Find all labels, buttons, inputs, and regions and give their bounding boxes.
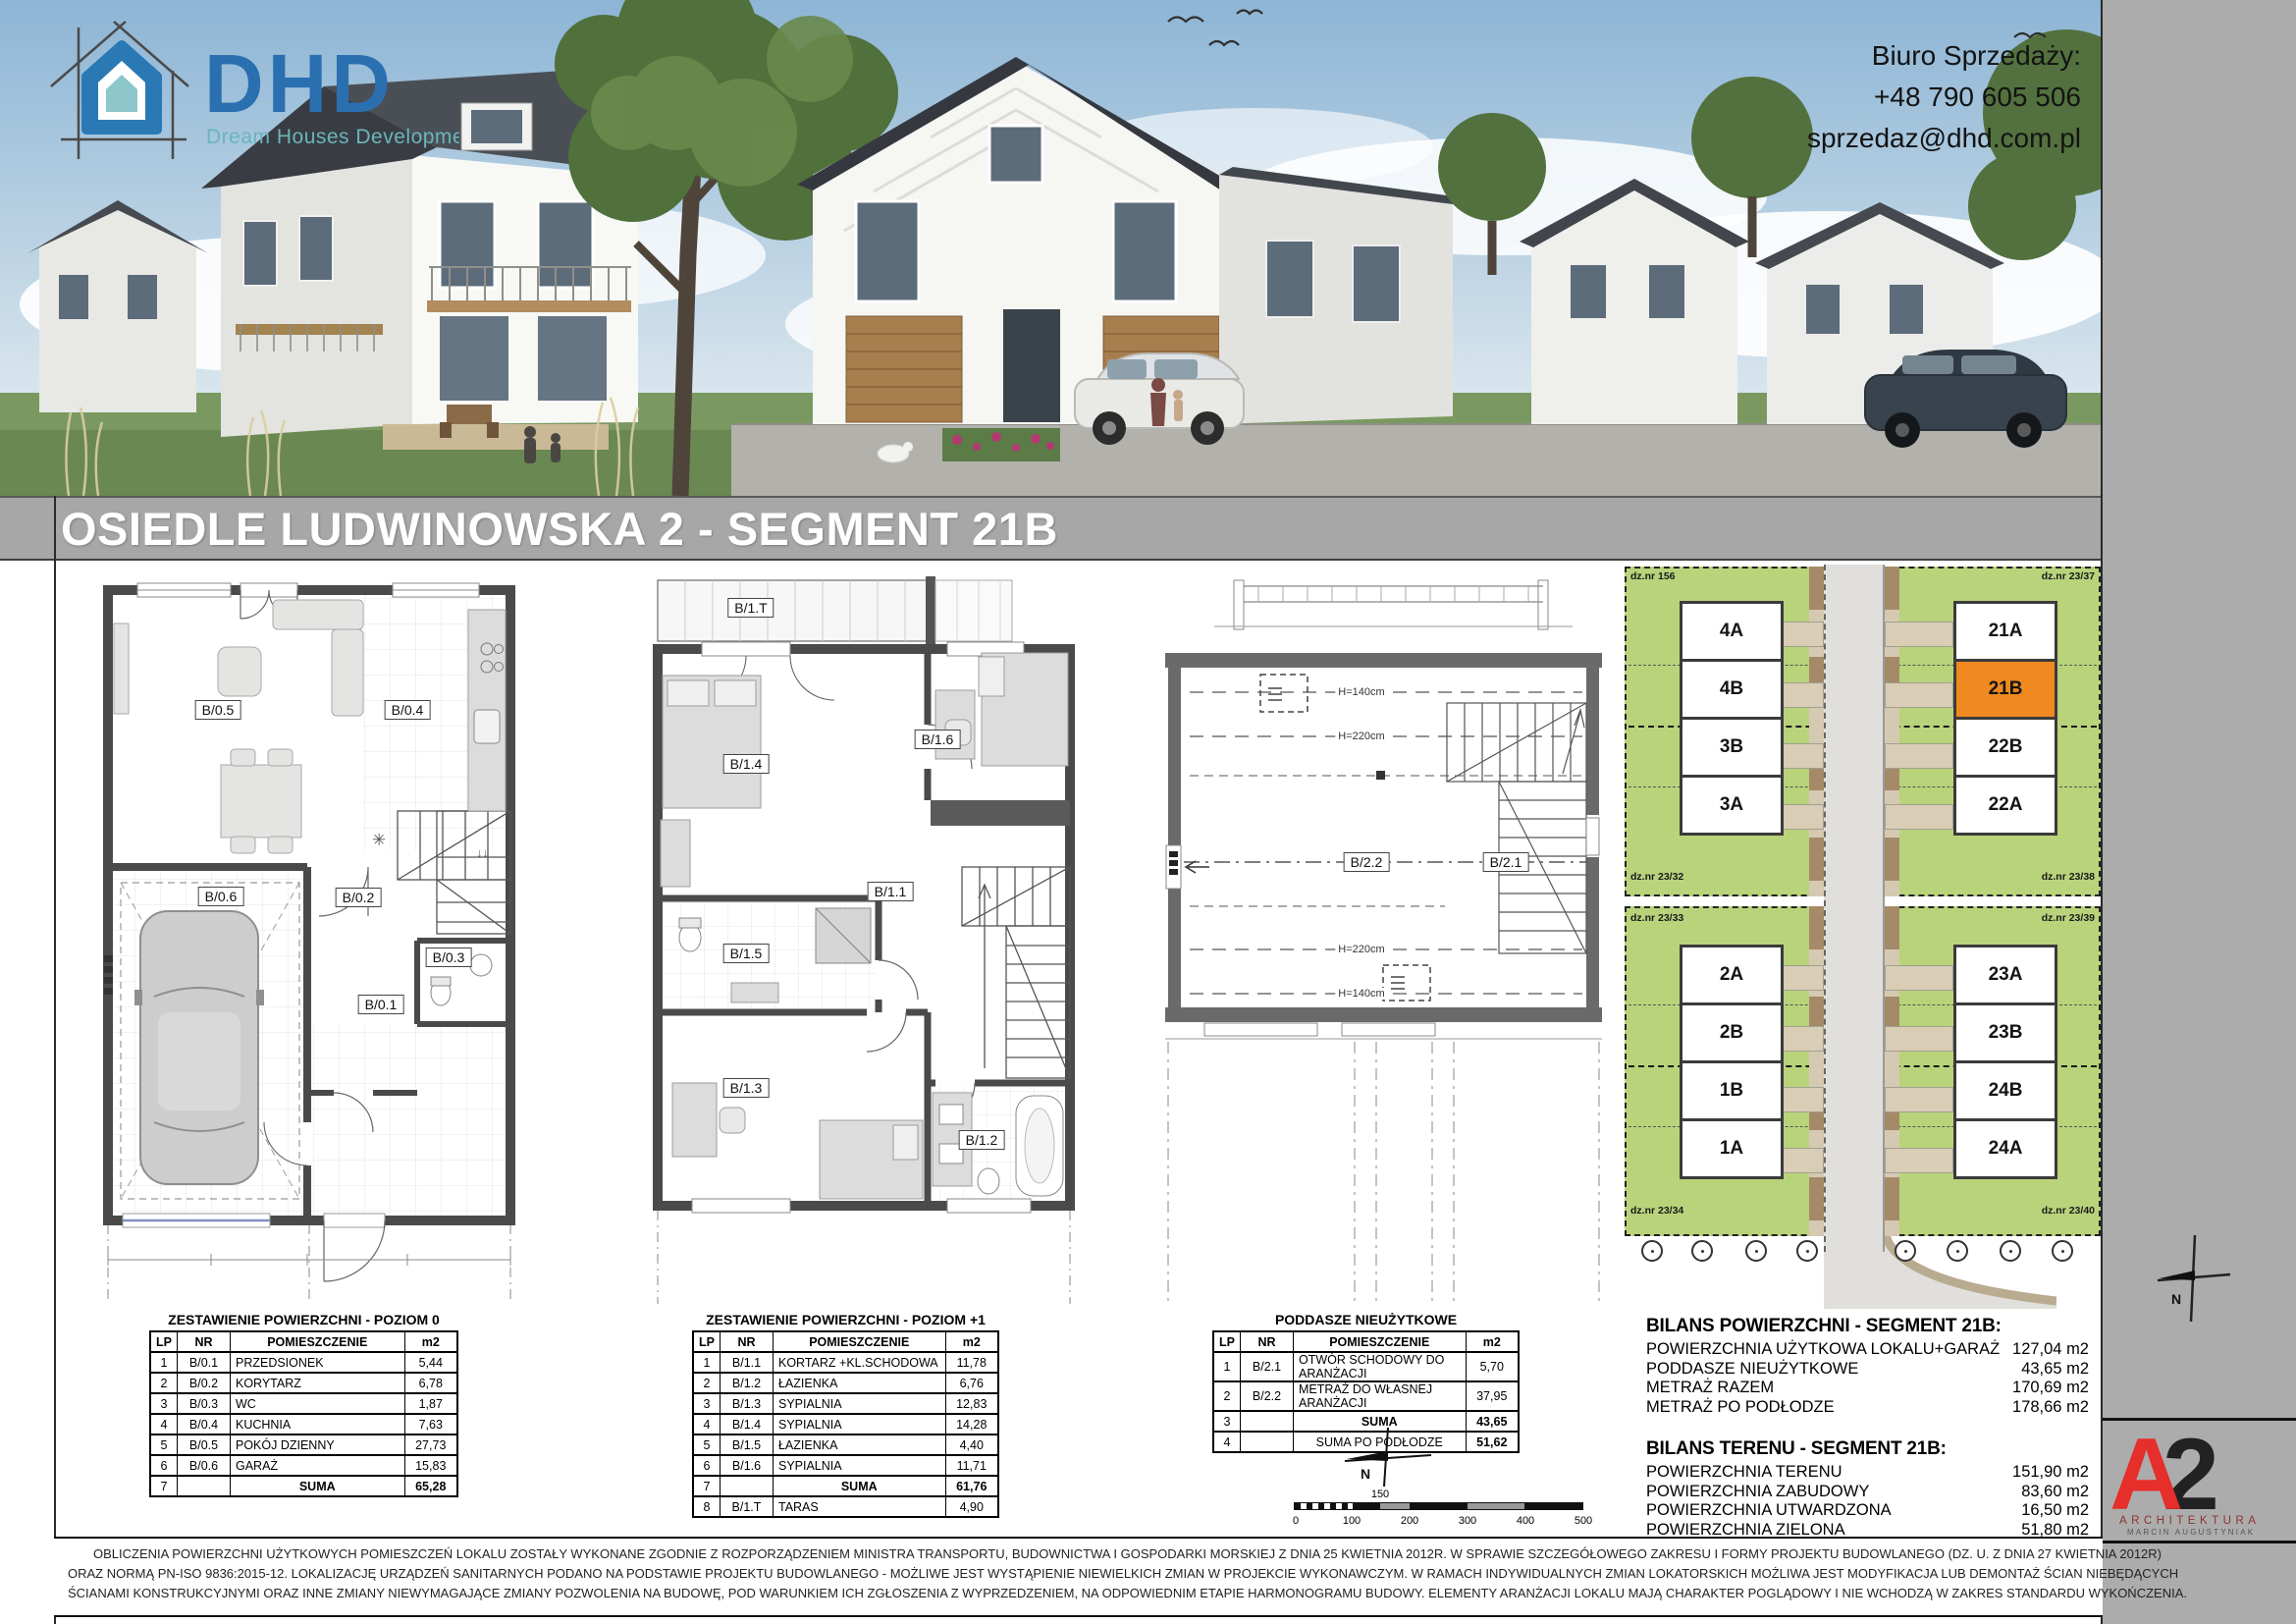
architect-name: MARCIN AUGUSTYNIAK — [2127, 1528, 2255, 1537]
col-header: NR — [720, 1331, 773, 1352]
room-label: B/1.2 — [959, 1130, 1005, 1150]
bilans-value: 43,65 m2 — [2021, 1360, 2089, 1380]
access-road — [1824, 565, 1885, 1252]
cell-room: ŁAZIENKA — [773, 1435, 945, 1455]
area-row: 1 B/2.1 OTWÓR SCHODOWY DO ARANŻACJI 5,70 — [1213, 1352, 1519, 1381]
north-arrow-icon: N — [2150, 1229, 2238, 1327]
cell-lp: 3 — [150, 1393, 177, 1414]
cell-room: SUMA — [773, 1476, 945, 1496]
unit-label: 21A — [1989, 621, 2023, 642]
right-margin-rail: N 2 A ARCHITEKTURA MARCIN AUGUSTYNIAK — [2101, 0, 2296, 1624]
table-header-row: LP NR POMIESZCZENIE m2 — [693, 1331, 998, 1352]
cell-nr: B/1.1 — [720, 1352, 773, 1373]
contact-phone: +48 790 605 506 — [1659, 77, 2081, 118]
disclaimer-line: ŚCIANAMI KONSTRUKCYJNYMI ORAZ INNE ZMIAN… — [68, 1584, 2095, 1603]
entry-path — [1885, 804, 1953, 830]
table-header-row: LP NR POMIESZCZENIE m2 — [1213, 1331, 1519, 1352]
area-row: 5 B/1.5 ŁAZIENKA 4,40 — [693, 1435, 998, 1455]
room-label: B/0.4 — [385, 700, 431, 720]
title-banner: OSIEDLE LUDWINOWSKA 2 - SEGMENT 21B — [0, 496, 2101, 561]
cell-nr: B/1.6 — [720, 1455, 773, 1476]
area-table-level0: LP NR POMIESZCZENIE m2 1 B/0.1 PRZEDSION… — [149, 1330, 458, 1497]
plot-number: dz.nr 23/38 — [2042, 871, 2095, 883]
cell-area: 1,87 — [404, 1393, 457, 1414]
tree-icon — [1691, 1240, 1713, 1262]
col-header: m2 — [945, 1331, 998, 1352]
cell-area: 7,63 — [404, 1414, 457, 1435]
cell-area: 4,90 — [945, 1496, 998, 1517]
site-unit: 22A — [1953, 775, 2057, 836]
cell-lp: 2 — [693, 1373, 720, 1393]
cell-area: 12,83 — [945, 1393, 998, 1414]
sales-contact: Biuro Sprzedaży: +48 790 605 506 sprzeda… — [1659, 35, 2081, 159]
cell-lp: 1 — [150, 1352, 177, 1373]
entry-path — [1780, 622, 1824, 647]
area-row: 4 B/0.4 KUCHNIA 7,63 — [150, 1414, 457, 1435]
plot-number: dz.nr 23/37 — [2042, 570, 2095, 582]
brand-name: DHD — [204, 37, 395, 130]
entry-path — [1885, 622, 1953, 647]
room-label: B/0.5 — [195, 700, 241, 720]
area-table-level0-box: ZESTAWIENIE POWIERZCHNI - POZIOM 0 LP NR… — [149, 1312, 458, 1497]
bilans-areas-title: BILANS POWIERZCHNI - SEGMENT 21B: — [1646, 1316, 2089, 1337]
cell-room: SYPIALNIA — [773, 1414, 945, 1435]
height-annotation: H=140cm — [1335, 686, 1387, 698]
architect-logo-box: 2 A ARCHITEKTURA MARCIN AUGUSTYNIAK — [2103, 1418, 2296, 1543]
area-row: 2 B/2.2 METRAŻ DO WŁASNEJ ARANŻACJI 37,9… — [1213, 1381, 1519, 1411]
cell-area: 14,28 — [945, 1414, 998, 1435]
table-title: ZESTAWIENIE POWIERZCHNI - POZIOM 0 — [149, 1312, 458, 1327]
area-row: 7 SUMA 61,76 — [693, 1476, 998, 1496]
cell-nr: B/2.2 — [1240, 1381, 1293, 1411]
site-unit: 1B — [1680, 1060, 1784, 1121]
site-unit: 3B — [1680, 717, 1784, 778]
bilans-row: POWIERZCHNIA TERENU 151,90 m2 — [1646, 1463, 2089, 1483]
area-table-level1: LP NR POMIESZCZENIE m2 1 B/1.1 KORTARZ +… — [692, 1330, 999, 1518]
site-unit: 24A — [1953, 1118, 2057, 1179]
bilans-row: METRAŻ RAZEM 170,69 m2 — [1646, 1379, 2089, 1398]
unit-label: 1A — [1720, 1138, 1743, 1160]
svg-text:↓↓: ↓↓ — [476, 845, 489, 860]
contact-title: Biuro Sprzedaży: — [1659, 35, 2081, 77]
unit-label: 24B — [1989, 1080, 2023, 1102]
tree-icon — [1895, 1240, 1916, 1262]
brand-tagline: Dream Houses Development — [206, 126, 459, 148]
cell-room: POKÓJ DZIENNY — [230, 1435, 404, 1455]
area-row: 3 B/1.3 SYPIALNIA 12,83 — [693, 1393, 998, 1414]
unit-label: 2A — [1720, 964, 1743, 986]
bilans-site-title: BILANS TERENU - SEGMENT 21B: — [1646, 1438, 2089, 1460]
area-row: 1 B/1.1 KORTARZ +KL.SCHODOWA 11,78 — [693, 1352, 998, 1373]
room-label: B/0.1 — [358, 995, 404, 1014]
table-title: PODDASZE NIEUŻYTKOWE — [1212, 1312, 1520, 1327]
cell-area: 61,76 — [945, 1476, 998, 1496]
site-unit: 3A — [1680, 775, 1784, 836]
dhd-logo: DHD Dream Houses Development — [27, 14, 459, 161]
cell-area: 11,71 — [945, 1455, 998, 1476]
cell-nr: B/1.T — [720, 1496, 773, 1517]
site-unit: 24B — [1953, 1060, 2057, 1121]
col-header: POMIESZCZENIE — [1293, 1331, 1466, 1352]
col-header: LP — [1213, 1331, 1240, 1352]
site-unit: 2B — [1680, 1002, 1784, 1063]
unit-label: 23B — [1989, 1022, 2023, 1044]
unit-label: 22B — [1989, 736, 2023, 758]
cell-room: METRAŻ DO WŁASNEJ ARANŻACJI — [1293, 1381, 1466, 1411]
unit-label: 3B — [1720, 736, 1743, 758]
scale-label: 300 — [1459, 1515, 1476, 1527]
col-header: NR — [1240, 1331, 1293, 1352]
room-label: B/1.1 — [868, 882, 914, 901]
area-row: 6 B/0.6 GARAŻ 15,83 — [150, 1455, 457, 1476]
cell-room: TARAS — [773, 1496, 945, 1517]
site-plan: 4A4B3B3A 21A21B22B22A 2A2B1B1A 23A23B24B… — [1625, 565, 2101, 1309]
entry-path — [1780, 682, 1824, 708]
page-title: OSIEDLE LUDWINOWSKA 2 - SEGMENT 21B — [0, 502, 1058, 556]
cell-room: KUCHNIA — [230, 1414, 404, 1435]
cell-lp: 4 — [693, 1414, 720, 1435]
col-header: NR — [177, 1331, 230, 1352]
bilans-row: METRAŻ PO PODŁODZE 178,66 m2 — [1646, 1398, 2089, 1418]
cell-lp: 5 — [693, 1435, 720, 1455]
col-header: LP — [693, 1331, 720, 1352]
bilans-value: 83,60 m2 — [2021, 1483, 2089, 1502]
unit-column-lower-right: 23A23B24B24A — [1953, 947, 2057, 1179]
bilans-row: POWIERZCHNIA UŻYTKOWA LOKALU+GARAŻ 127,0… — [1646, 1340, 2089, 1360]
site-unit: 21B — [1953, 659, 2057, 720]
entry-path — [1885, 682, 1953, 708]
area-row: 5 B/0.5 POKÓJ DZIENNY 27,73 — [150, 1435, 457, 1455]
cell-nr: B/1.4 — [720, 1414, 773, 1435]
cell-nr: B/1.2 — [720, 1373, 773, 1393]
bilans-row: POWIERZCHNIA ZABUDOWY 83,60 m2 — [1646, 1483, 2089, 1502]
height-annotation: H=140cm — [1335, 988, 1387, 1000]
disclaimer-line: ORAZ NORMĄ PN-ISO 9836:2015-12. LOKALIZA… — [68, 1564, 2095, 1584]
scale-label: 0 — [1293, 1515, 1299, 1527]
tree-icon — [2000, 1240, 2021, 1262]
cell-room: WC — [230, 1393, 404, 1414]
cell-lp: 6 — [150, 1455, 177, 1476]
bilans-row: PODDASZE NIEUŻYTKOWE 43,65 m2 — [1646, 1360, 2089, 1380]
plot-number: dz.nr 156 — [1630, 570, 1676, 582]
room-label: B/1.3 — [723, 1078, 770, 1098]
hero-render-photo: DHD Dream Houses Development Biuro Sprze… — [0, 0, 2101, 496]
floor-plan-level1: B/1.T B/1.4 B/1.6 B/1.5 B/1.1 B/1.3 B/1.… — [633, 572, 1095, 1307]
area-row: 4 B/1.4 SYPIALNIA 14,28 — [693, 1414, 998, 1435]
col-header: POMIESZCZENIE — [230, 1331, 404, 1352]
cell-area: 6,78 — [404, 1373, 457, 1393]
unit-label: 3A — [1720, 794, 1743, 816]
cell-nr: B/1.5 — [720, 1435, 773, 1455]
area-table-level1-box: ZESTAWIENIE POWIERZCHNI - POZIOM +1 LP N… — [692, 1312, 999, 1518]
room-label: B/2.1 — [1483, 852, 1529, 872]
bilans-areas-rows: POWIERZCHNIA UŻYTKOWA LOKALU+GARAŻ 127,0… — [1646, 1340, 2089, 1417]
bilans-value: 127,04 m2 — [2012, 1340, 2089, 1360]
site-unit: 2A — [1680, 945, 1784, 1005]
cell-nr: B/0.3 — [177, 1393, 230, 1414]
contact-email: sprzedaz@dhd.com.pl — [1659, 118, 2081, 159]
entry-path — [1780, 804, 1824, 830]
cell-room: SYPIALNIA — [773, 1455, 945, 1476]
cell-lp: 6 — [693, 1455, 720, 1476]
cell-nr: B/0.2 — [177, 1373, 230, 1393]
entry-path — [1780, 1087, 1824, 1112]
height-annotation: H=220cm — [1335, 731, 1387, 742]
cell-nr: B/0.5 — [177, 1435, 230, 1455]
unit-column-upper-left: 4A4B3B3A — [1680, 604, 1784, 836]
area-row: 3 B/0.3 WC 1,87 — [150, 1393, 457, 1414]
cell-area: 6,76 — [945, 1373, 998, 1393]
cell-lp: 7 — [150, 1476, 177, 1496]
room-label: B/1.6 — [915, 730, 961, 749]
cell-room: OTWÓR SCHODOWY DO ARANŻACJI — [1293, 1352, 1466, 1381]
bilans-value: 178,66 m2 — [2012, 1398, 2089, 1418]
entry-path — [1780, 1148, 1824, 1173]
cell-lp: 7 — [693, 1476, 720, 1496]
sidewalk — [1809, 906, 1824, 1236]
cell-area: 4,40 — [945, 1435, 998, 1455]
north-arrow-icon: N — [1337, 1426, 1435, 1489]
area-row: 1 B/0.1 PRZEDSIONEK 5,44 — [150, 1352, 457, 1373]
area-summary: BILANS POWIERZCHNI - SEGMENT 21B: POWIER… — [1646, 1316, 2089, 1540]
plot-number: dz.nr 23/33 — [1630, 912, 1683, 924]
unit-column-upper-right: 21A21B22B22A — [1953, 604, 2057, 836]
col-header: m2 — [404, 1331, 457, 1352]
floor-plan-attic: B/2.2 B/2.1 H=140cm H=220cm H=220cm H=14… — [1150, 572, 1620, 1307]
bilans-label: PODDASZE NIEUŻYTKOWE — [1646, 1360, 1858, 1380]
cell-lp: 2 — [150, 1373, 177, 1393]
cell-nr — [177, 1476, 230, 1496]
unit-label: 22A — [1989, 794, 2023, 816]
room-label: B/0.2 — [336, 888, 382, 907]
cell-lp: 4 — [150, 1414, 177, 1435]
scale-mid-label: 150 — [1371, 1489, 1389, 1500]
table-title: ZESTAWIENIE POWIERZCHNI - POZIOM +1 — [692, 1312, 999, 1327]
cell-lp: 1 — [1213, 1352, 1240, 1381]
floor-plan-level0: ✳ ↓↓ B/0.5 B/0. — [83, 572, 530, 1307]
scale-label: 100 — [1343, 1515, 1361, 1527]
tree-icon — [1796, 1240, 1818, 1262]
site-unit: 22B — [1953, 717, 2057, 778]
site-unit: 21A — [1953, 601, 2057, 662]
cell-lp: 3 — [693, 1393, 720, 1414]
bilans-label: POWIERZCHNIA TERENU — [1646, 1463, 1842, 1483]
cell-area: 15,83 — [404, 1455, 457, 1476]
room-label: B/2.2 — [1344, 852, 1390, 872]
architect-word: ARCHITEKTURA — [2119, 1515, 2260, 1527]
cell-area: 5,44 — [404, 1352, 457, 1373]
bilans-label: POWIERZCHNIA UTWARDZONA — [1646, 1501, 1892, 1521]
cell-area: 43,65 — [1466, 1411, 1519, 1432]
unit-label: 1B — [1720, 1080, 1743, 1102]
entry-path — [1885, 1087, 1953, 1112]
cell-nr: B/1.3 — [720, 1393, 773, 1414]
area-row: 7 SUMA 65,28 — [150, 1476, 457, 1496]
cell-lp: 1 — [693, 1352, 720, 1373]
room-label: B/1.4 — [723, 754, 770, 774]
cell-lp: 8 — [693, 1496, 720, 1517]
height-annotation: H=220cm — [1335, 944, 1387, 955]
entry-path — [1885, 743, 1953, 769]
area-row: 6 B/1.6 SYPIALNIA 11,71 — [693, 1455, 998, 1476]
area-row: 8 B/1.T TARAS 4,90 — [693, 1496, 998, 1517]
bilans-label: POWIERZCHNIA UŻYTKOWA LOKALU+GARAŻ — [1646, 1340, 2000, 1360]
unit-label: 4A — [1720, 621, 1743, 642]
cell-area: 51,62 — [1466, 1432, 1519, 1452]
bilans-label: METRAŻ PO PODŁODZE — [1646, 1398, 1835, 1418]
sidewalk — [1809, 567, 1824, 896]
legal-disclaimer: OBLICZENIA POWIERZCHNI UŻYTKOWYCH POMIES… — [54, 1537, 2103, 1617]
cell-room: ŁAZIENKA — [773, 1373, 945, 1393]
unit-label: 4B — [1720, 678, 1743, 700]
entry-path — [1885, 1148, 1953, 1173]
cell-room: KORTARZ +KL.SCHODOWA — [773, 1352, 945, 1373]
a2-architect-logo: 2 A ARCHITEKTURA MARCIN AUGUSTYNIAK — [2111, 1423, 2288, 1539]
bilans-value: 170,69 m2 — [2012, 1379, 2089, 1398]
bilans-site-rows: POWIERZCHNIA TERENU 151,90 m2 POWIERZCHN… — [1646, 1463, 2089, 1540]
cell-nr — [1240, 1432, 1293, 1452]
sidewalk — [1885, 906, 1899, 1236]
plot-number: dz.nr 23/40 — [2042, 1205, 2095, 1217]
cell-room: KORYTARZ — [230, 1373, 404, 1393]
tree-icon — [1947, 1240, 1968, 1262]
cell-area: 65,28 — [404, 1476, 457, 1496]
col-header: POMIESZCZENIE — [773, 1331, 945, 1352]
plot-number: dz.nr 23/32 — [1630, 871, 1683, 883]
area-row: 2 B/0.2 KORYTARZ 6,78 — [150, 1373, 457, 1393]
table-header-row: LP NR POMIESZCZENIE m2 — [150, 1331, 457, 1352]
disclaimer-line: OBLICZENIA POWIERZCHNI UŻYTKOWYCH POMIES… — [68, 1544, 2095, 1564]
room-label: B/0.3 — [426, 947, 472, 967]
bilans-value: 151,90 m2 — [2012, 1463, 2089, 1483]
cell-area: 5,70 — [1466, 1352, 1519, 1381]
site-unit: 23B — [1953, 1002, 2057, 1063]
entry-path — [1780, 1026, 1824, 1052]
site-unit: 4B — [1680, 659, 1784, 720]
cell-nr — [1240, 1411, 1293, 1432]
cell-room: GARAŻ — [230, 1455, 404, 1476]
unit-label: 23A — [1989, 964, 2023, 986]
north-label: N — [1361, 1466, 1370, 1482]
cell-nr: B/0.6 — [177, 1455, 230, 1476]
entry-path — [1885, 965, 1953, 991]
cell-lp: 5 — [150, 1435, 177, 1455]
tree-icon — [1745, 1240, 1767, 1262]
unit-column-lower-left: 2A2B1B1A — [1680, 947, 1784, 1179]
scale-label: 500 — [1575, 1515, 1592, 1527]
sidewalk — [1885, 567, 1899, 896]
cell-area: 27,73 — [404, 1435, 457, 1455]
entry-path — [1780, 965, 1824, 991]
unit-label: 2B — [1720, 1022, 1743, 1044]
bilans-label: POWIERZCHNIA ZABUDOWY — [1646, 1483, 1869, 1502]
site-unit: 1A — [1680, 1118, 1784, 1179]
plot-number: dz.nr 23/34 — [1630, 1205, 1683, 1217]
entry-path — [1780, 743, 1824, 769]
cell-lp: 3 — [1213, 1411, 1240, 1432]
bilans-value: 16,50 m2 — [2021, 1501, 2089, 1521]
svg-text:✳: ✳ — [372, 831, 386, 849]
cell-nr — [720, 1476, 773, 1496]
cell-nr: B/2.1 — [1240, 1352, 1293, 1381]
room-label: B/1.5 — [723, 944, 770, 963]
cell-room: SUMA — [230, 1476, 404, 1496]
cell-room: SYPIALNIA — [773, 1393, 945, 1414]
area-row: 2 B/1.2 ŁAZIENKA 6,76 — [693, 1373, 998, 1393]
scale-label: 400 — [1517, 1515, 1534, 1527]
north-label: N — [2171, 1291, 2181, 1307]
cell-nr: B/0.4 — [177, 1414, 230, 1435]
bilans-row: POWIERZCHNIA UTWARDZONA 16,50 m2 — [1646, 1501, 2089, 1521]
cell-area: 11,78 — [945, 1352, 998, 1373]
cell-lp: 4 — [1213, 1432, 1240, 1452]
cell-room: PRZEDSIONEK — [230, 1352, 404, 1373]
brochure-sheet: DHD Dream Houses Development Biuro Sprze… — [0, 0, 2296, 1624]
col-header: m2 — [1466, 1331, 1519, 1352]
site-unit: 23A — [1953, 945, 2057, 1005]
col-header: LP — [150, 1331, 177, 1352]
scale-bar: 150 0 100 200 300 400 500 — [1294, 1489, 1598, 1532]
entry-path — [1885, 1026, 1953, 1052]
sheet-frame-line — [54, 496, 56, 1624]
bilans-label: METRAŻ RAZEM — [1646, 1379, 1774, 1398]
room-label: B/1.T — [727, 598, 774, 618]
scale-bar-segments — [1294, 1502, 1583, 1510]
room-label: B/0.6 — [198, 887, 244, 906]
tree-icon — [2052, 1240, 2073, 1262]
cell-nr: B/0.1 — [177, 1352, 230, 1373]
scale-label: 200 — [1401, 1515, 1418, 1527]
unit-label: 21B — [1989, 678, 2023, 700]
unit-label: 24A — [1989, 1138, 2023, 1160]
site-unit: 4A — [1680, 601, 1784, 662]
cell-lp: 2 — [1213, 1381, 1240, 1411]
cell-area: 37,95 — [1466, 1381, 1519, 1411]
plot-number: dz.nr 23/39 — [2042, 912, 2095, 924]
tree-icon — [1641, 1240, 1663, 1262]
